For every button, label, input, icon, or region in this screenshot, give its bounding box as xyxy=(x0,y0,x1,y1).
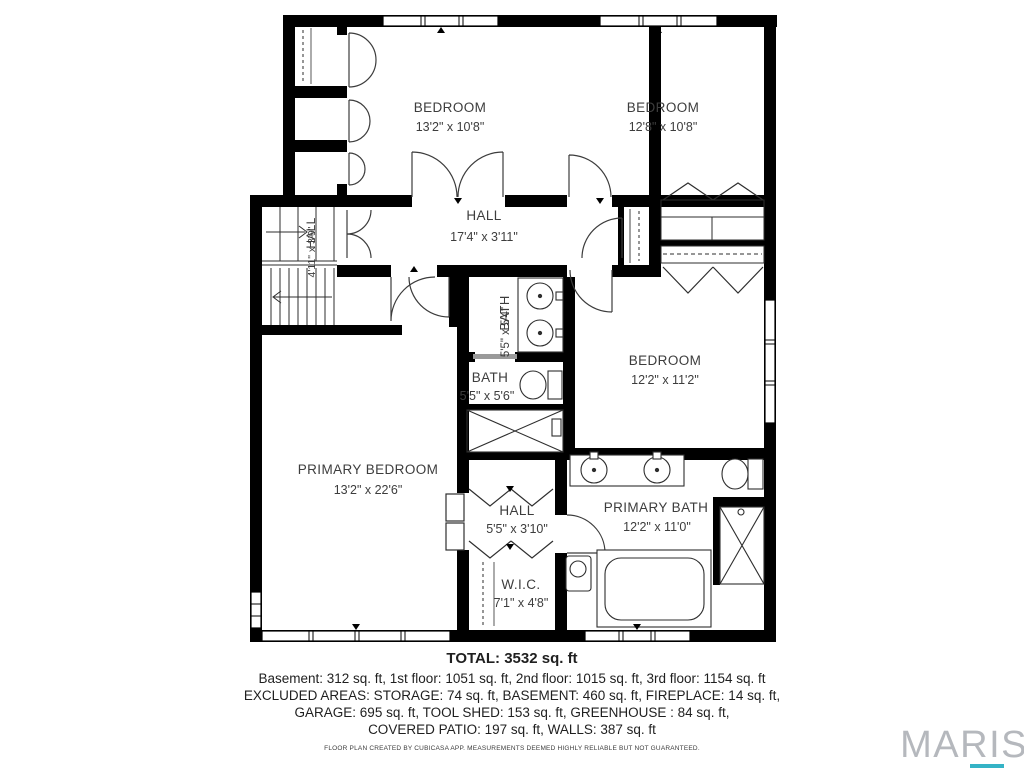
room-label-hall-lower: HALL 5'5" x 3'10" xyxy=(486,503,548,536)
maris-logo-accent xyxy=(970,764,1004,768)
room-dims: 12'2" x 11'0" xyxy=(623,520,691,534)
room-dims: 13'2" x 10'8" xyxy=(416,120,485,134)
room-dims: 5'5" x 5'6" xyxy=(460,389,515,403)
room-dims: 12'2" x 11'2" xyxy=(631,373,699,387)
room-label-stair-hall: HALL 4'11" x 3'9" xyxy=(304,217,318,277)
excluded-line-3: COVERED PATIO: 197 sq. ft, WALLS: 387 sq… xyxy=(0,721,1024,738)
primary-bedroom-double-doors xyxy=(446,494,464,550)
floor-plan: BEDROOM 13'2" x 10'8" BEDROOM 12'8" x 10… xyxy=(0,0,1024,650)
room-name: PRIMARY BEDROOM xyxy=(298,462,439,477)
room-label-bedroom-3: BEDROOM 12'2" x 11'2" xyxy=(629,353,702,387)
primary-shower xyxy=(720,507,764,584)
area-summary: TOTAL: 3532 sq. ft Basement: 312 sq. ft,… xyxy=(0,650,1024,738)
room-dims: 7'1" x 4'8" xyxy=(494,596,549,610)
room-label-primary-bedroom: PRIMARY BEDROOM 13'2" x 22'6" xyxy=(298,462,439,497)
room-dims: 13'2" x 22'6" xyxy=(334,483,403,497)
room-label-bath-upper: BATH 5'5" x 5'4" xyxy=(497,295,512,357)
stairs xyxy=(262,207,337,325)
room-dims: 17'4" x 3'11" xyxy=(450,230,518,244)
room-dims: 5'5" x 5'4" xyxy=(500,307,512,357)
room-name: W.I.C. xyxy=(501,577,540,592)
total-area: TOTAL: 3532 sq. ft xyxy=(0,650,1024,667)
room-label-wic: W.I.C. 7'1" x 4'8" xyxy=(494,577,549,610)
room-dims: 12'8" x 10'8" xyxy=(629,120,698,134)
room-name: BEDROOM xyxy=(414,100,487,115)
room-name: BEDROOM xyxy=(627,100,700,115)
room-name: HALL xyxy=(466,208,501,223)
room-name: BEDROOM xyxy=(629,353,702,368)
room-name: HALL xyxy=(499,503,534,518)
room-name: PRIMARY BATH xyxy=(604,500,709,515)
room-name: BATH xyxy=(472,370,509,385)
room-label-bedroom-2: BEDROOM 12'8" x 10'8" xyxy=(627,100,700,134)
maris-logo: MARIS xyxy=(900,724,1024,767)
room-dims: 5'5" x 3'10" xyxy=(486,522,548,536)
shower-linen xyxy=(467,410,563,452)
room-label-primary-bath: PRIMARY BATH 12'2" x 11'0" xyxy=(604,500,709,534)
room-dims: 4'11" x 3'9" xyxy=(306,226,318,277)
floor-plan-page: BEDROOM 13'2" x 10'8" BEDROOM 12'8" x 10… xyxy=(0,0,1024,768)
room-label-bedroom-1: BEDROOM 13'2" x 10'8" xyxy=(414,100,487,134)
excluded-line-1: EXCLUDED AREAS: STORAGE: 74 sq. ft, BASE… xyxy=(0,687,1024,704)
room-label-hall-top: HALL 17'4" x 3'11" xyxy=(450,208,518,244)
attribution-text: FLOOR PLAN CREATED BY CUBICASA APP. MEAS… xyxy=(0,745,1024,752)
floors-line: Basement: 312 sq. ft, 1st floor: 1051 sq… xyxy=(0,670,1024,687)
excluded-line-2: GARAGE: 695 sq. ft, TOOL SHED: 153 sq. f… xyxy=(0,704,1024,721)
